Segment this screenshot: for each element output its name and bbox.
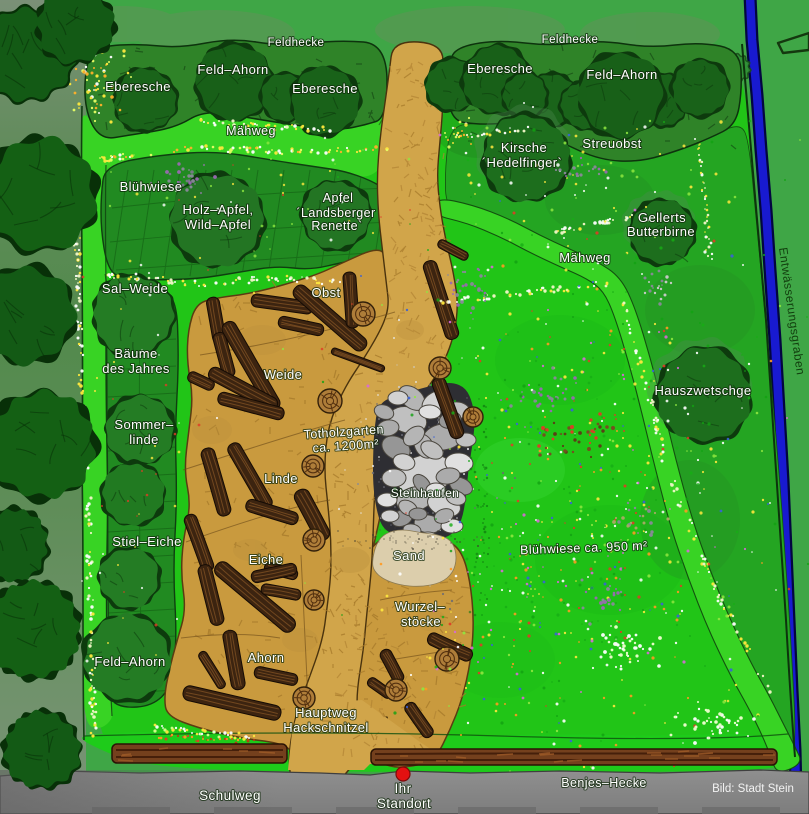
svg-text:Kirsche: Kirsche xyxy=(501,140,547,155)
svg-text:Sal–Weide: Sal–Weide xyxy=(102,281,168,296)
svg-text:Streuobst: Streuobst xyxy=(582,136,641,151)
svg-text:Weide: Weide xyxy=(264,367,303,382)
svg-text:Ahorn: Ahorn xyxy=(248,650,285,665)
svg-text:Eiche: Eiche xyxy=(249,552,284,567)
svg-text:Standort: Standort xyxy=(377,796,431,811)
svg-text:Mähweg: Mähweg xyxy=(226,124,276,138)
svg-text:´Hedelfinger`: ´Hedelfinger` xyxy=(482,155,562,170)
svg-text:Wild–Apfel: Wild–Apfel xyxy=(185,217,251,232)
svg-text:linde: linde xyxy=(129,432,158,447)
svg-text:Apfel: Apfel xyxy=(323,191,354,205)
svg-text:Stiel–Eiche: Stiel–Eiche xyxy=(112,534,181,549)
svg-text:´Landsberger: ´Landsberger xyxy=(296,206,375,220)
svg-text:Hackschnitzel: Hackschnitzel xyxy=(283,720,368,735)
svg-text:des Jahres: des Jahres xyxy=(102,361,170,376)
svg-text:Ihr: Ihr xyxy=(395,781,412,796)
svg-text:Schulweg: Schulweg xyxy=(199,788,261,803)
svg-text:Feldhecke: Feldhecke xyxy=(268,37,325,49)
svg-text:Eberesche: Eberesche xyxy=(467,61,533,76)
svg-text:Feldhecke: Feldhecke xyxy=(542,34,599,46)
svg-text:Linde: Linde xyxy=(264,471,298,486)
svg-text:Steinhaufen: Steinhaufen xyxy=(391,486,459,500)
svg-text:Holz–Apfel,: Holz–Apfel, xyxy=(183,202,254,217)
svg-text:Eberesche: Eberesche xyxy=(105,79,171,94)
svg-text:Feld–Ahorn: Feld–Ahorn xyxy=(197,62,268,77)
svg-text:Bäume: Bäume xyxy=(114,346,157,361)
svg-text:Feld–Ahorn: Feld–Ahorn xyxy=(94,654,165,669)
svg-text:stöcke: stöcke xyxy=(401,614,441,629)
svg-text:Gellerts: Gellerts xyxy=(638,210,686,225)
svg-text:Benjes–Hecke: Benjes–Hecke xyxy=(561,776,646,790)
svg-text:Wurzel–: Wurzel– xyxy=(395,599,446,614)
svg-text:Hauptweg: Hauptweg xyxy=(295,705,357,720)
svg-text:Eberesche: Eberesche xyxy=(292,81,358,96)
svg-text:Hauszwetschge: Hauszwetschge xyxy=(655,383,752,398)
svg-text:Sommer–: Sommer– xyxy=(114,417,174,432)
svg-text:Butterbirne: Butterbirne xyxy=(627,224,695,239)
svg-text:Feld–Ahorn: Feld–Ahorn xyxy=(586,67,657,82)
svg-text:Mähweg: Mähweg xyxy=(559,250,611,265)
svg-text:Blühwiese: Blühwiese xyxy=(120,179,183,194)
svg-text:Renette`: Renette` xyxy=(311,219,362,233)
svg-text:Obst: Obst xyxy=(311,285,340,300)
svg-text:Sand: Sand xyxy=(393,548,425,563)
svg-text:Bild: Stadt Stein: Bild: Stadt Stein xyxy=(712,783,794,795)
